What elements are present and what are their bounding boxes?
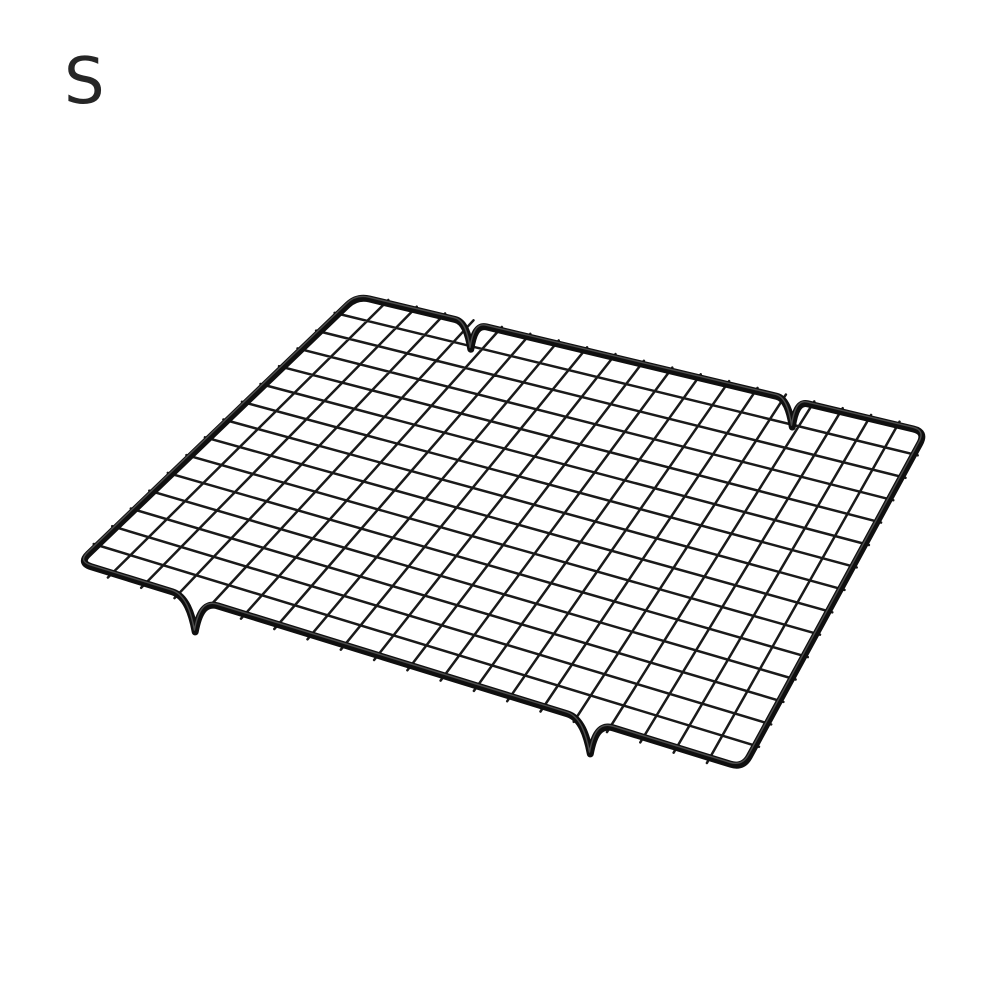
- product-photo: S: [0, 0, 1000, 1000]
- cooling-rack-image: [0, 0, 1000, 1000]
